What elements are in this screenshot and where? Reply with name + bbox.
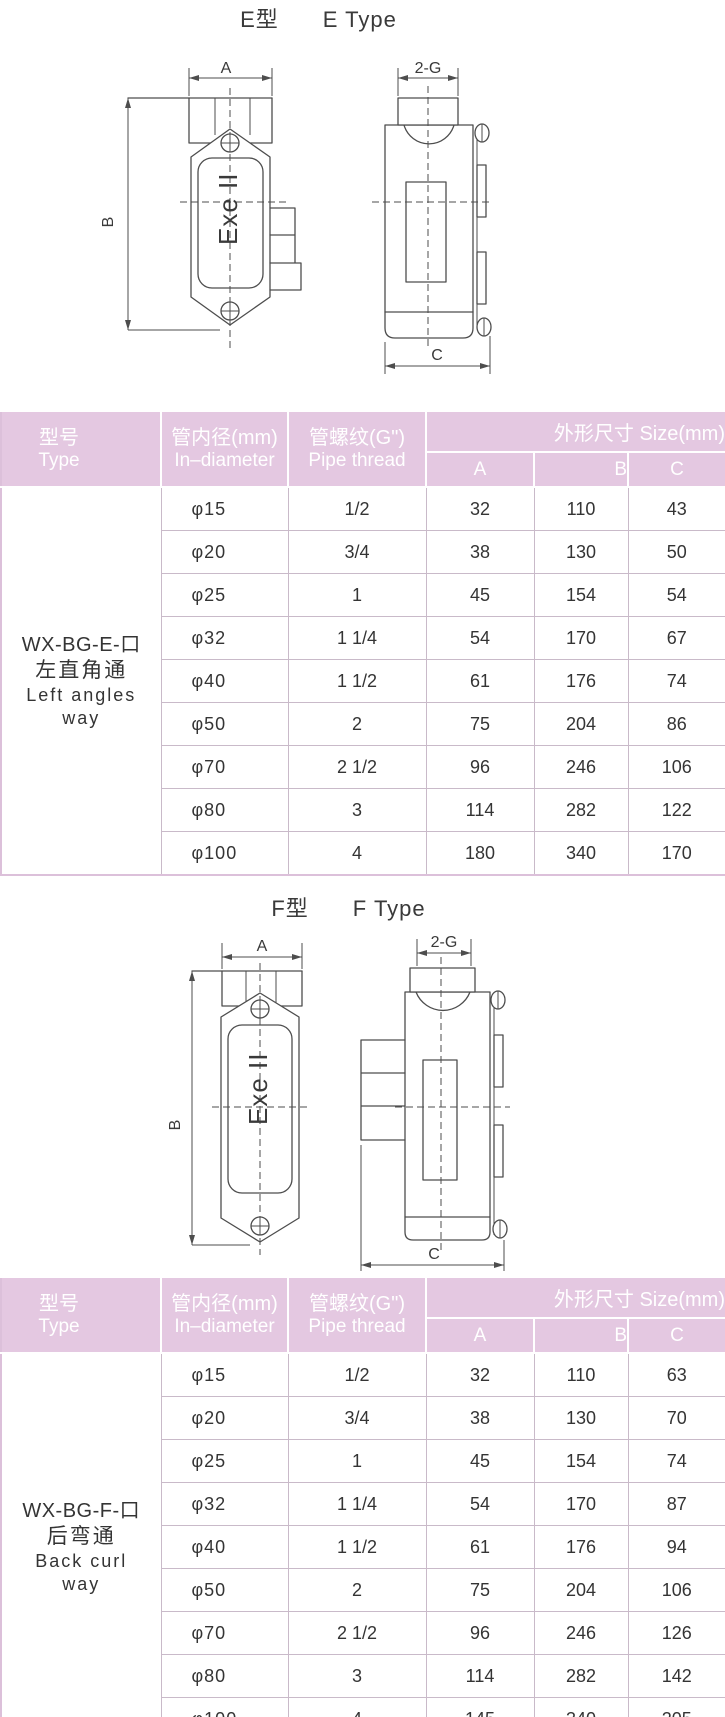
header-type: 型号 Type: [1, 412, 161, 487]
model-code: WX-BG-E-口: [3, 632, 160, 658]
size-b-cell: 130: [534, 531, 628, 574]
size-a-cell: 96: [426, 1612, 534, 1655]
dim-label-b: B: [167, 1120, 184, 1131]
size-b-cell: 110: [534, 1353, 628, 1397]
size-b-cell: 340: [534, 1698, 628, 1717]
size-b-cell: 282: [534, 1655, 628, 1698]
thread-cell: 1/2: [288, 487, 426, 531]
size-a-cell: 180: [426, 832, 534, 876]
dim-label-a: A: [221, 60, 232, 77]
model-code: WX-BG-F-口: [3, 1498, 160, 1524]
size-c-cell: 122: [628, 789, 725, 832]
header-sub-b: B: [534, 452, 628, 487]
dim-label-a: A: [257, 938, 268, 955]
dim-label-2g: 2-G: [415, 60, 442, 77]
size-c-cell: 205: [628, 1698, 725, 1717]
catalog-page: E型 E Type A: [0, 0, 725, 1717]
diameter-cell: φ15: [161, 1353, 288, 1397]
diameter-cell: φ15: [161, 487, 288, 531]
diameter-cell: φ50: [161, 1569, 288, 1612]
thread-cell: 3/4: [288, 531, 426, 574]
size-b-cell: 130: [534, 1397, 628, 1440]
spec-table-e: 型号 Type 管内径(mm) In–diameter 管螺纹(G") Pipe…: [0, 412, 725, 876]
size-b-cell: 154: [534, 1440, 628, 1483]
size-b-cell: 340: [534, 832, 628, 876]
diameter-cell: φ80: [161, 789, 288, 832]
header-sub-a: A: [426, 1318, 534, 1353]
size-a-cell: 32: [426, 1353, 534, 1397]
header-sub-b: B: [534, 1318, 628, 1353]
size-c-cell: 87: [628, 1483, 725, 1526]
size-a-cell: 75: [426, 1569, 534, 1612]
f-side-view: 2-G C: [361, 934, 510, 1271]
size-a-cell: 45: [426, 574, 534, 617]
e-front-view: A B Exe II: [100, 60, 301, 348]
header-in-diameter: 管内径(mm) In–diameter: [161, 1278, 288, 1353]
dim-label-c: C: [428, 1246, 440, 1263]
size-a-cell: 145: [426, 1698, 534, 1717]
header-sub-c: C: [628, 1318, 725, 1353]
thread-cell: 4: [288, 832, 426, 876]
section-title-en: F Type: [353, 896, 426, 922]
e-side-view: 2-G C: [372, 60, 492, 374]
size-c-cell: 74: [628, 660, 725, 703]
thread-cell: 3/4: [288, 1397, 426, 1440]
section-title-f: F型 F Type: [0, 891, 711, 923]
size-c-cell: 50: [628, 531, 725, 574]
size-c-cell: 170: [628, 832, 725, 876]
size-b-cell: 246: [534, 746, 628, 789]
size-c-cell: 63: [628, 1353, 725, 1397]
size-b-cell: 204: [534, 1569, 628, 1612]
thread-cell: 2: [288, 1569, 426, 1612]
diameter-cell: φ40: [161, 660, 288, 703]
header-size: 外形尺寸 Size(mm): [426, 1278, 725, 1318]
thread-cell: 1 1/2: [288, 660, 426, 703]
header-sub-a: A: [426, 452, 534, 487]
size-c-cell: 142: [628, 1655, 725, 1698]
dim-label-b: B: [100, 217, 117, 228]
size-a-cell: 38: [426, 531, 534, 574]
size-a-cell: 114: [426, 789, 534, 832]
diameter-cell: φ100: [161, 1698, 288, 1717]
model-cell: WX-BG-F-口 后弯通 Back curl way: [1, 1353, 161, 1717]
thread-cell: 1 1/4: [288, 1483, 426, 1526]
thread-cell: 3: [288, 789, 426, 832]
model-name-zh: 后弯通: [3, 1524, 160, 1550]
model-name-en: Left angles: [3, 684, 160, 707]
size-c-cell: 54: [628, 574, 725, 617]
diameter-cell: φ32: [161, 1483, 288, 1526]
thread-cell: 4: [288, 1698, 426, 1717]
size-b-cell: 246: [534, 1612, 628, 1655]
table-row: WX-BG-F-口 后弯通 Back curl way φ15 1/2 32 1…: [1, 1353, 725, 1397]
size-b-cell: 282: [534, 789, 628, 832]
size-a-cell: 45: [426, 1440, 534, 1483]
size-b-cell: 176: [534, 1526, 628, 1569]
thread-cell: 1/2: [288, 1353, 426, 1397]
size-c-cell: 106: [628, 1569, 725, 1612]
thread-cell: 3: [288, 1655, 426, 1698]
size-a-cell: 54: [426, 617, 534, 660]
technical-drawing-f: A B Exe II: [0, 925, 725, 1275]
size-b-cell: 170: [534, 617, 628, 660]
size-a-cell: 96: [426, 746, 534, 789]
diameter-cell: φ70: [161, 1612, 288, 1655]
size-b-cell: 170: [534, 1483, 628, 1526]
header-in-diameter: 管内径(mm) In–diameter: [161, 412, 288, 487]
technical-drawing-e: A B Exe II: [0, 30, 725, 380]
plate-label: Exe II: [243, 1053, 273, 1125]
size-b-cell: 154: [534, 574, 628, 617]
diameter-cell: φ20: [161, 1397, 288, 1440]
diameter-cell: φ50: [161, 703, 288, 746]
spec-table-f: 型号 Type 管内径(mm) In–diameter 管螺纹(G") Pipe…: [0, 1278, 725, 1717]
plate-label: Exe II: [213, 173, 243, 245]
model-name-zh: 左直角通: [3, 658, 160, 684]
size-a-cell: 32: [426, 487, 534, 531]
model-name-en: Back curl: [3, 1550, 160, 1573]
size-c-cell: 70: [628, 1397, 725, 1440]
section-title-zh: F型: [271, 891, 308, 923]
header-pipe-thread: 管螺纹(G") Pipe thread: [288, 1278, 426, 1353]
f-front-view: A B Exe II: [167, 938, 308, 1255]
size-b-cell: 204: [534, 703, 628, 746]
model-name-en: way: [3, 1573, 160, 1596]
dim-label-2g: 2-G: [431, 934, 458, 951]
size-b-cell: 110: [534, 487, 628, 531]
thread-cell: 2 1/2: [288, 746, 426, 789]
header-sub-c: C: [628, 452, 725, 487]
thread-cell: 1: [288, 574, 426, 617]
header-size: 外形尺寸 Size(mm): [426, 412, 725, 452]
thread-cell: 1 1/2: [288, 1526, 426, 1569]
diameter-cell: φ25: [161, 1440, 288, 1483]
model-name-en: way: [3, 707, 160, 730]
thread-cell: 2 1/2: [288, 1612, 426, 1655]
thread-cell: 1 1/4: [288, 617, 426, 660]
size-c-cell: 67: [628, 617, 725, 660]
diameter-cell: φ100: [161, 832, 288, 876]
diameter-cell: φ40: [161, 1526, 288, 1569]
thread-cell: 1: [288, 1440, 426, 1483]
dim-label-c: C: [431, 347, 443, 364]
size-a-cell: 38: [426, 1397, 534, 1440]
size-a-cell: 114: [426, 1655, 534, 1698]
diameter-cell: φ25: [161, 574, 288, 617]
diameter-cell: φ32: [161, 617, 288, 660]
diameter-cell: φ70: [161, 746, 288, 789]
size-c-cell: 74: [628, 1440, 725, 1483]
model-cell: WX-BG-E-口 左直角通 Left angles way: [1, 487, 161, 875]
size-c-cell: 106: [628, 746, 725, 789]
size-a-cell: 75: [426, 703, 534, 746]
header-pipe-thread: 管螺纹(G") Pipe thread: [288, 412, 426, 487]
size-a-cell: 61: [426, 660, 534, 703]
size-c-cell: 94: [628, 1526, 725, 1569]
size-c-cell: 43: [628, 487, 725, 531]
diameter-cell: φ20: [161, 531, 288, 574]
size-c-cell: 126: [628, 1612, 725, 1655]
thread-cell: 2: [288, 703, 426, 746]
size-b-cell: 176: [534, 660, 628, 703]
diameter-cell: φ80: [161, 1655, 288, 1698]
size-a-cell: 61: [426, 1526, 534, 1569]
table-row: WX-BG-E-口 左直角通 Left angles way φ15 1/2 3…: [1, 487, 725, 531]
size-c-cell: 86: [628, 703, 725, 746]
size-a-cell: 54: [426, 1483, 534, 1526]
table-header: 型号 Type 管内径(mm) In–diameter 管螺纹(G") Pipe…: [1, 412, 725, 487]
table-header: 型号 Type 管内径(mm) In–diameter 管螺纹(G") Pipe…: [1, 1278, 725, 1353]
header-type: 型号 Type: [1, 1278, 161, 1353]
